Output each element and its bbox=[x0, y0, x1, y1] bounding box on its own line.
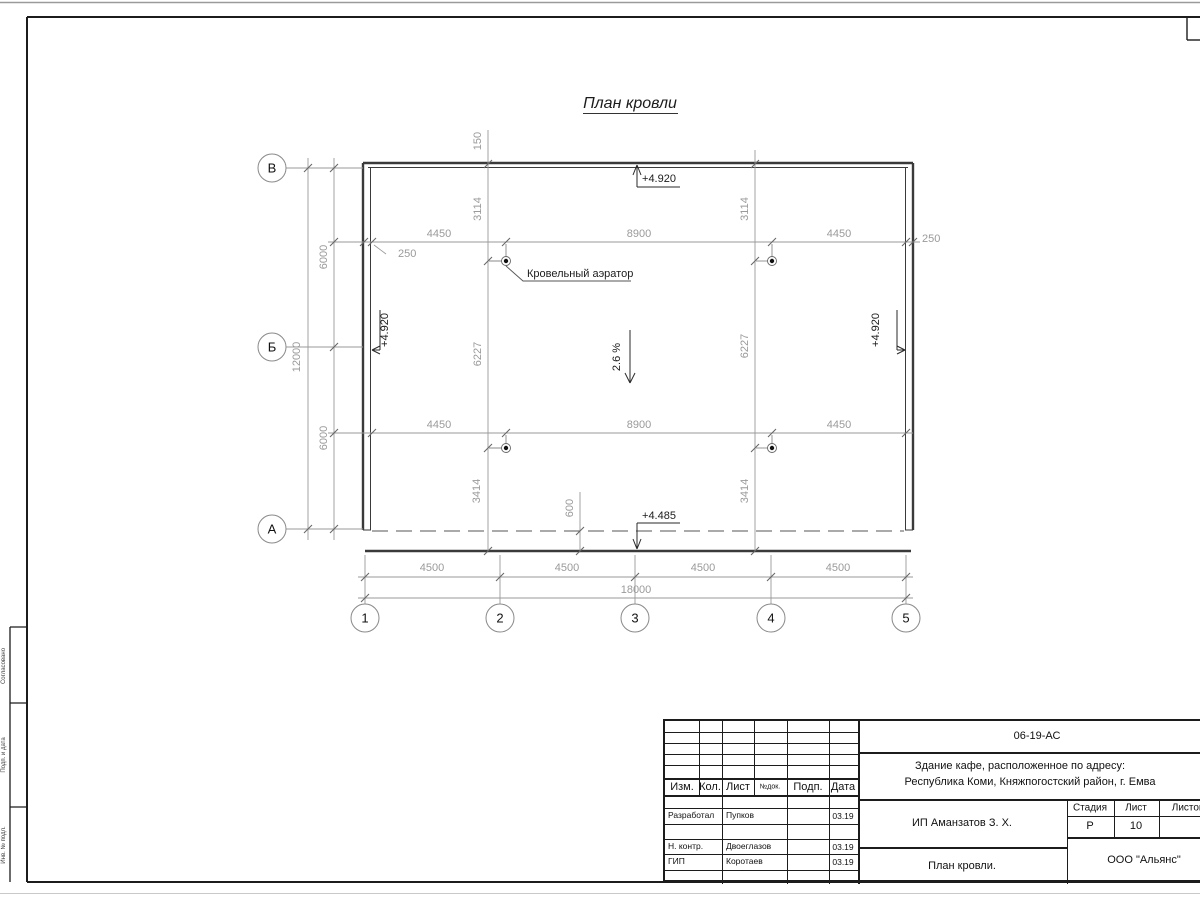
tb-doc-code: 06-19-АС bbox=[1014, 730, 1061, 742]
svg-text:8900: 8900 bbox=[627, 419, 651, 431]
tb-col-podp: Подп. bbox=[793, 781, 822, 793]
tb-col-kol: Кол. bbox=[699, 781, 721, 793]
tb-name: Пупков bbox=[726, 810, 754, 820]
tb-company: ООО "Альянс" bbox=[1107, 854, 1181, 866]
axis-row-label: Б bbox=[268, 340, 277, 355]
tb-col-list: Лист bbox=[726, 781, 750, 793]
tb-col-ndok: №док. bbox=[760, 784, 781, 791]
drawing-title: План кровли bbox=[583, 95, 677, 112]
axis-row-label: А bbox=[268, 522, 277, 537]
svg-text:4450: 4450 bbox=[427, 228, 451, 240]
tb-project-line1: Здание кафе, расположенное по адресу: bbox=[915, 760, 1125, 772]
tb-col-izm: Изм. bbox=[670, 781, 694, 793]
tb-name: Двоеглазов bbox=[726, 841, 771, 851]
tb-col-data: Дата bbox=[831, 781, 855, 793]
aerator-label: Кровельный аэратор bbox=[527, 268, 633, 280]
svg-text:4500: 4500 bbox=[420, 562, 444, 574]
tb-date: 03.19 bbox=[832, 857, 853, 867]
svg-text:18000: 18000 bbox=[621, 584, 652, 596]
svg-text:4450: 4450 bbox=[827, 419, 851, 431]
svg-text:3414: 3414 bbox=[739, 479, 751, 503]
svg-text:4450: 4450 bbox=[427, 419, 451, 431]
svg-text:4500: 4500 bbox=[691, 562, 715, 574]
side-stamp bbox=[10, 627, 27, 882]
svg-text:250: 250 bbox=[398, 248, 416, 260]
roof-outline bbox=[363, 163, 913, 551]
tb-project-line2: Республика Коми, Княжпогостский район, г… bbox=[904, 776, 1155, 788]
column-axes: 1 2 3 4 5 bbox=[351, 604, 920, 632]
svg-text:150: 150 bbox=[472, 132, 484, 150]
elevation-left: +4.920 bbox=[379, 313, 391, 347]
elevation-bottom: +4.485 bbox=[642, 510, 676, 522]
svg-text:12000: 12000 bbox=[291, 342, 303, 373]
axis-col-label: 5 bbox=[902, 611, 909, 626]
elevation-marks bbox=[372, 165, 905, 549]
tb-role: Разработал bbox=[668, 810, 714, 820]
svg-text:250: 250 bbox=[922, 233, 940, 245]
svg-text:6000: 6000 bbox=[318, 426, 330, 450]
side-stamp-label: Согласовано bbox=[1, 647, 7, 684]
tb-stage-value: Р bbox=[1086, 820, 1093, 832]
tb-client: ИП Аманзатов З. Х. bbox=[912, 817, 1012, 829]
axis-col-label: 4 bbox=[767, 611, 774, 626]
dimension-ticks bbox=[304, 160, 917, 602]
svg-text:4500: 4500 bbox=[555, 562, 579, 574]
title-block: Изм. Кол. Лист №док. Подп. Дата Разработ… bbox=[663, 719, 1200, 882]
slope-arrow bbox=[625, 330, 635, 383]
row-axes: В Б А bbox=[258, 154, 286, 543]
tb-role: ГИП bbox=[668, 856, 685, 866]
svg-text:3114: 3114 bbox=[739, 197, 751, 221]
svg-text:6227: 6227 bbox=[739, 334, 751, 358]
side-stamp-label: Подп. и дата bbox=[1, 737, 7, 773]
svg-text:600: 600 bbox=[564, 499, 576, 517]
elevation-right: +4.920 bbox=[870, 313, 882, 347]
tb-listov-header: Листов bbox=[1172, 803, 1200, 814]
svg-text:6227: 6227 bbox=[472, 342, 484, 366]
svg-text:4450: 4450 bbox=[827, 228, 851, 240]
side-stamp-labels: Согласовано Подп. и дата Инв. № подл. bbox=[0, 647, 7, 863]
elevation-top: +4.920 bbox=[642, 173, 676, 185]
svg-text:8900: 8900 bbox=[627, 228, 651, 240]
tb-role: Н. контр. bbox=[668, 841, 703, 851]
axis-col-label: 1 bbox=[361, 611, 368, 626]
svg-text:6000: 6000 bbox=[318, 245, 330, 269]
tb-sheet-no: 10 bbox=[1130, 820, 1142, 832]
axis-row-label: В bbox=[268, 161, 277, 176]
tb-sheet-title: План кровли. bbox=[928, 860, 996, 872]
tb-date: 03.19 bbox=[832, 811, 853, 821]
tb-list-header: Лист bbox=[1125, 803, 1147, 814]
svg-text:4500: 4500 bbox=[826, 562, 850, 574]
svg-text:3414: 3414 bbox=[471, 479, 483, 503]
axis-col-label: 3 bbox=[631, 611, 638, 626]
axis-col-label: 2 bbox=[496, 611, 503, 626]
slope-label: 2.6 % bbox=[611, 343, 623, 371]
tb-name: Коротаев bbox=[726, 856, 763, 866]
tb-date: 03.19 bbox=[832, 842, 853, 852]
tb-stage-header: Стадия bbox=[1073, 803, 1107, 814]
svg-text:3114: 3114 bbox=[472, 197, 484, 221]
dimension-lines bbox=[286, 130, 920, 604]
side-stamp-label: Инв. № подл. bbox=[0, 826, 7, 864]
drawing-sheet: Согласовано Подп. и дата Инв. № подл. Пл… bbox=[0, 0, 1200, 900]
